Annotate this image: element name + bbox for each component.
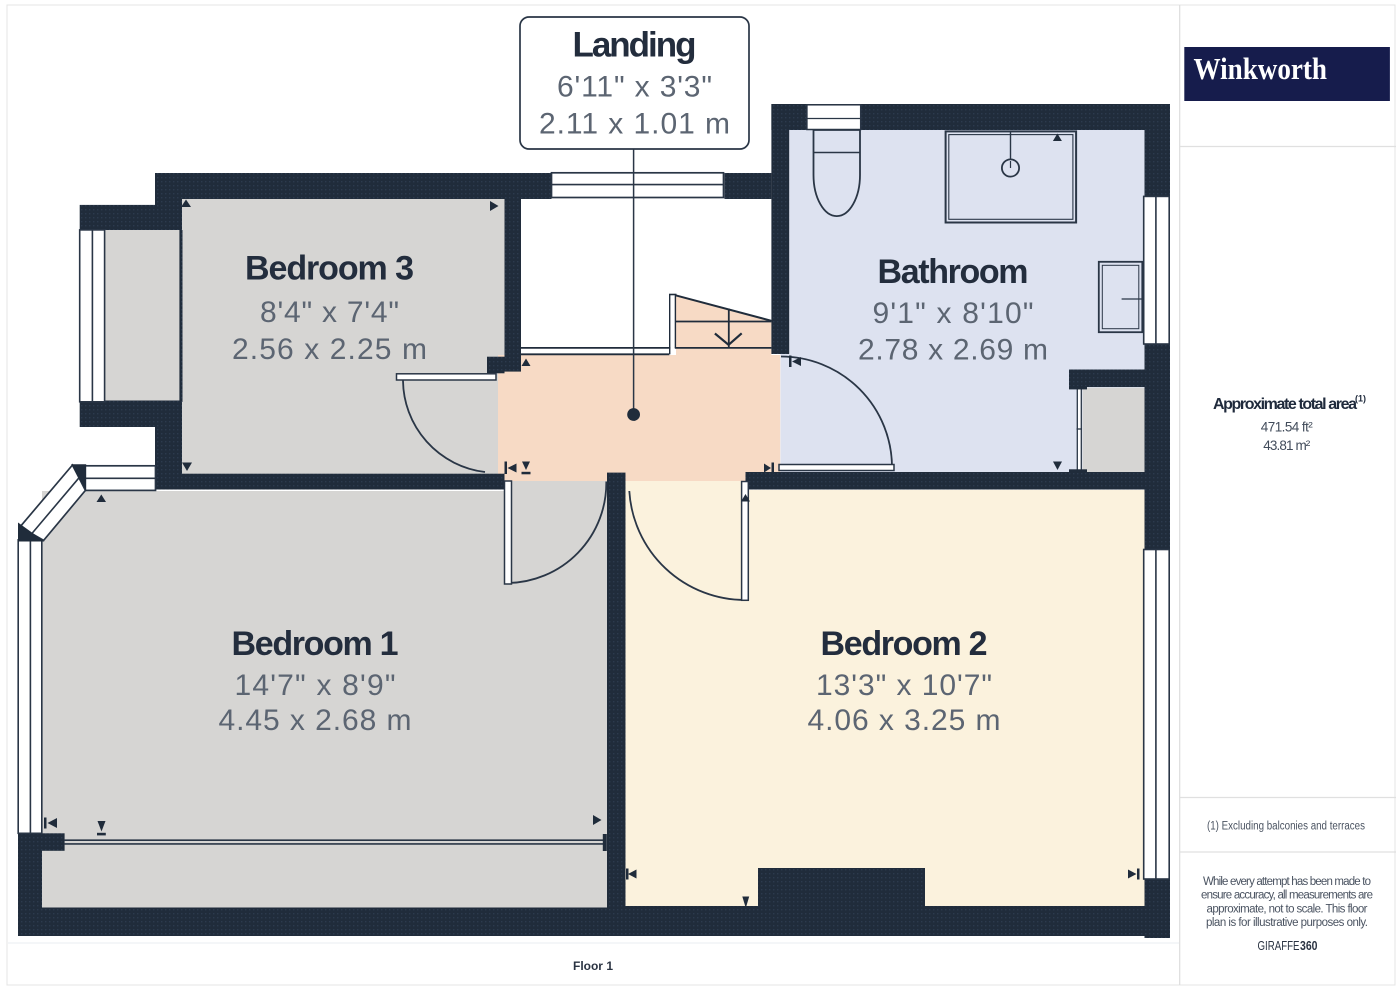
svg-text:Bathroom: Bathroom [878, 253, 1029, 291]
svg-text:ensure accuracy, all measureme: ensure accuracy, all measurements are [1201, 890, 1373, 902]
svg-text:4.45 x 2.68 m: 4.45 x 2.68 m [219, 704, 412, 737]
svg-text:Landing: Landing [573, 26, 697, 65]
svg-text:Bedroom 2: Bedroom 2 [821, 625, 988, 663]
svg-text:14'7" x 8'9": 14'7" x 8'9" [235, 669, 396, 702]
svg-text:(1) Excluding balconies and te: (1) Excluding balconies and terraces [1207, 821, 1365, 833]
svg-text:2.56 x 2.25 m: 2.56 x 2.25 m [232, 333, 427, 366]
svg-text:(1): (1) [1355, 394, 1366, 404]
svg-text:approximate, not to scale. Thi: approximate, not to scale. This floor [1207, 903, 1368, 915]
svg-text:Floor 1: Floor 1 [573, 959, 613, 973]
svg-text:GIRAFFE: GIRAFFE [1258, 938, 1300, 953]
svg-text:9'1" x 8'10": 9'1" x 8'10" [873, 297, 1034, 330]
svg-text:plan is for illustrative purpo: plan is for illustrative purposes only. [1206, 917, 1368, 929]
svg-text:471.54 ft²: 471.54 ft² [1261, 420, 1314, 435]
svg-text:Approximate total area: Approximate total area [1213, 396, 1357, 413]
svg-text:While every attempt has been m: While every attempt has been made to [1203, 876, 1371, 888]
svg-text:2.78 x 2.69 m: 2.78 x 2.69 m [858, 334, 1048, 367]
svg-text:Bedroom 3: Bedroom 3 [245, 250, 414, 288]
svg-text:13'3" x 10'7": 13'3" x 10'7" [816, 669, 992, 702]
svg-text:8'4" x 7'4": 8'4" x 7'4" [260, 296, 399, 329]
svg-text:6'11" x 3'3": 6'11" x 3'3" [557, 71, 712, 104]
svg-text:4.06 x 3.25 m: 4.06 x 3.25 m [808, 704, 1001, 737]
svg-text:Bedroom 1: Bedroom 1 [232, 625, 399, 663]
svg-text:Winkworth: Winkworth [1194, 51, 1328, 86]
svg-text:43.81 m²: 43.81 m² [1263, 438, 1311, 453]
svg-text:2.11 x 1.01 m: 2.11 x 1.01 m [539, 108, 730, 141]
svg-text:360: 360 [1300, 938, 1318, 953]
